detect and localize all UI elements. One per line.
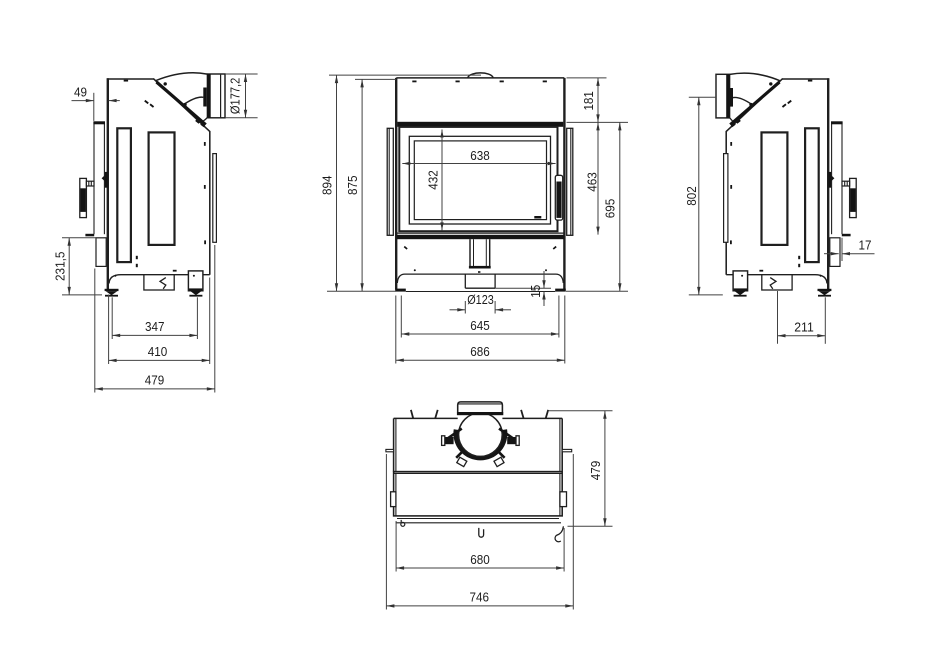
svg-text:695: 695 xyxy=(604,199,618,219)
svg-text:17: 17 xyxy=(859,239,872,253)
svg-text:479: 479 xyxy=(589,461,603,481)
svg-text:181: 181 xyxy=(582,91,596,111)
svg-text:49: 49 xyxy=(74,86,87,100)
svg-text:686: 686 xyxy=(470,345,490,359)
svg-text:Ø123: Ø123 xyxy=(467,293,494,307)
svg-text:680: 680 xyxy=(470,553,490,567)
svg-text:347: 347 xyxy=(145,320,165,334)
svg-text:802: 802 xyxy=(685,186,699,206)
svg-text:894: 894 xyxy=(321,176,335,196)
svg-text:432: 432 xyxy=(426,170,440,190)
svg-text:645: 645 xyxy=(470,319,490,333)
svg-text:746: 746 xyxy=(470,591,490,605)
svg-text:875: 875 xyxy=(346,176,360,196)
svg-text:Ø177,2: Ø177,2 xyxy=(229,78,243,114)
svg-text:638: 638 xyxy=(470,149,490,163)
svg-text:211: 211 xyxy=(794,321,814,335)
svg-text:410: 410 xyxy=(148,345,168,359)
svg-text:231,5: 231,5 xyxy=(54,252,68,281)
svg-text:463: 463 xyxy=(586,172,600,192)
svg-text:479: 479 xyxy=(145,374,165,388)
svg-text:15: 15 xyxy=(529,285,543,298)
